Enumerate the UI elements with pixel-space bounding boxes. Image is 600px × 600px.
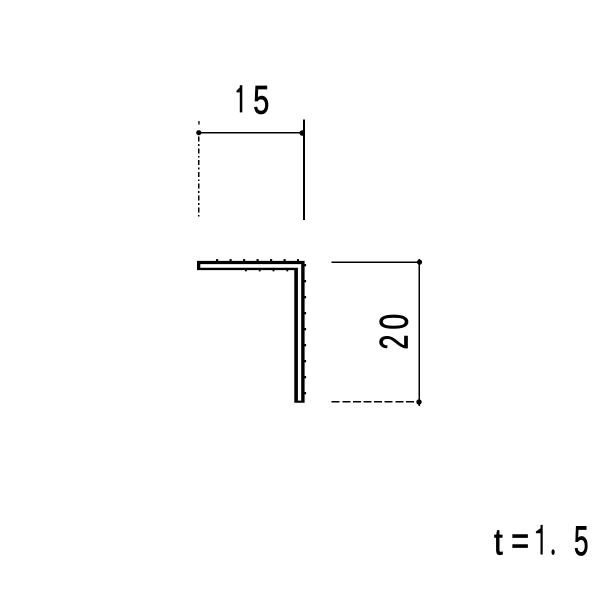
svg-text:=: = — [511, 518, 529, 563]
svg-text:5: 5 — [574, 518, 588, 565]
svg-text:t: t — [494, 522, 503, 563]
svg-text:5: 5 — [253, 78, 269, 123]
svg-text:2: 2 — [372, 335, 417, 350]
svg-text:0: 0 — [373, 314, 417, 330]
